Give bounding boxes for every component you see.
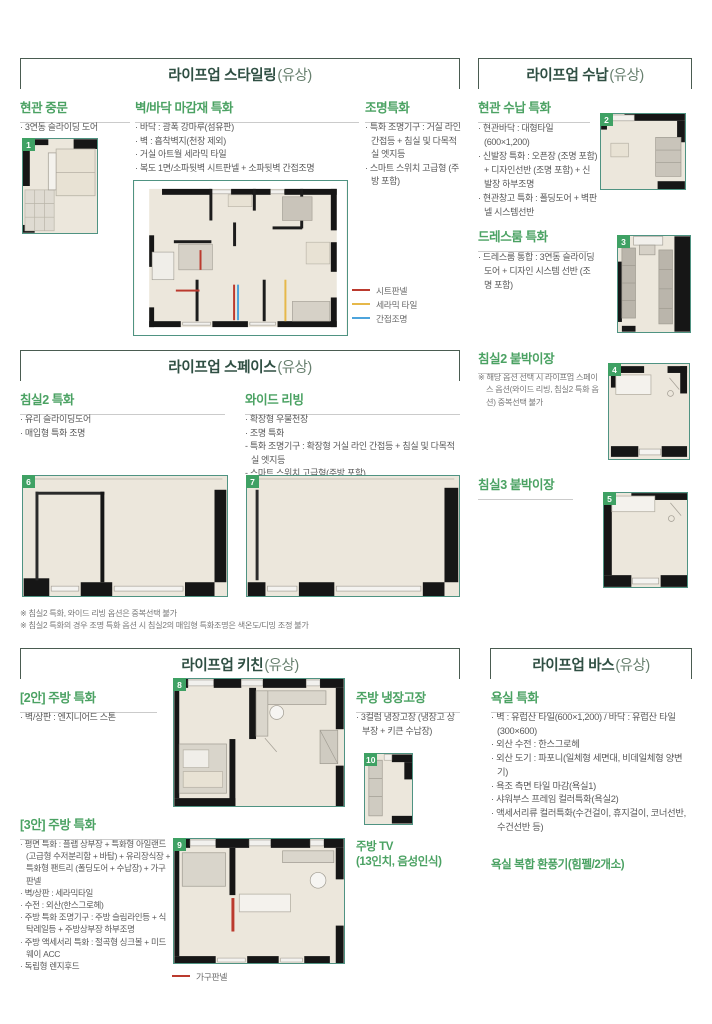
list-item: · 바닥 : 광폭 강마루(섬유판) bbox=[135, 121, 363, 135]
entrance-storage-heading: 현관 수납 특화 bbox=[478, 97, 590, 123]
floorplan-7-svg bbox=[247, 476, 459, 596]
note-item: ※ 해당 옵션 선택 시 라이프업 스페이스 옵션(와이드 리빙, 침실2 특화… bbox=[478, 372, 602, 409]
list-item: · 신발장 특화 : 오픈장 (조명 포함) + 디자인선반 (조명 포함) +… bbox=[478, 149, 598, 191]
section-title-space: 라이프업 스페이스(유상) bbox=[20, 350, 460, 381]
list-item: · 샤워부스 프레임 컬러특화(욕실2) bbox=[491, 793, 687, 807]
section-title-text: 라이프업 바스 bbox=[532, 654, 614, 675]
floorplan-5-svg bbox=[604, 493, 687, 587]
bathroom-items: · 벽 : 유럽산 타일(600×1,200) / 바닥 : 유럽산 타일(30… bbox=[491, 711, 687, 834]
space-bedroom2-items: · 유리 슬라이딩도어 · 매입형 특화 조명 bbox=[20, 413, 225, 440]
section-title-suffix: (유상) bbox=[264, 654, 298, 675]
styling-legend: 시트판넬 세라믹 타일 간접조명 bbox=[352, 283, 417, 325]
floorplan-number-badge: 6 bbox=[22, 475, 35, 488]
floorplan-number-badge: 8 bbox=[173, 678, 186, 691]
floorplan-number-badge: 2 bbox=[600, 113, 613, 126]
section-title-suffix: (유상) bbox=[277, 64, 311, 85]
legend-line-ceramic bbox=[352, 303, 370, 306]
entry-door-heading: 현관 중문 bbox=[20, 97, 130, 123]
floorplan-6: 6 bbox=[22, 475, 228, 597]
kitchen-plan2-heading: [2안] 주방 특화 bbox=[20, 687, 157, 713]
legend-label: 가구판넬 bbox=[196, 970, 227, 983]
list-item: - 특화 조명기구 : 확장형 거실 라인 간접등 + 침실 및 다목적실 엣지… bbox=[245, 440, 461, 467]
list-item: · 벽/상판 : 엔지니어드 스톤 bbox=[20, 711, 160, 725]
floorplan-8-svg bbox=[174, 679, 344, 806]
floorplan-number-badge: 9 bbox=[173, 838, 186, 851]
bath-fan-heading: 욕실 복합 환풍기(힘펠/2개소) bbox=[491, 858, 691, 873]
floorplan-main-svg bbox=[134, 181, 347, 335]
list-item: · 3컬럼 냉장고장 (냉장고 상부장 + 키큰 수납장) bbox=[356, 711, 462, 738]
list-item: · 현관창고 특화 : 폴딩도어 + 벽판넬 시스템선반 bbox=[478, 191, 598, 219]
legend-label: 시트판넬 bbox=[376, 284, 407, 297]
list-item: · 유리 슬라이딩도어 bbox=[20, 413, 225, 427]
list-item: · 욕조 측면 타일 마감(욕실1) bbox=[491, 780, 687, 794]
list-item: · 복도 1면/소파뒷벽 시트판넬 + 소파뒷벽 간접조명 bbox=[135, 162, 363, 176]
legend-label: 세라믹 타일 bbox=[376, 298, 417, 311]
section-title-bath: 라이프업 바스(유상) bbox=[490, 648, 692, 679]
bathroom-heading: 욕실 특화 bbox=[491, 687, 654, 713]
list-item: · 특화 조명기구 : 거실 라인 간접등 + 침실 및 다목적실 엣지등 bbox=[365, 121, 462, 162]
section-title-text: 라이프업 수납 bbox=[526, 64, 608, 85]
floorplan-9-svg bbox=[174, 839, 344, 963]
floorplan-4: 4 bbox=[608, 363, 690, 460]
legend-line-furniture bbox=[172, 975, 190, 978]
list-item: · 벽/상판 : 세라믹타일 bbox=[20, 887, 172, 899]
fridge-heading: 주방 냉장고장 bbox=[356, 687, 460, 713]
list-item: · 스마트 스위치 고급형 (주방 포함) bbox=[365, 162, 462, 189]
list-item: · 독립형 렌지후드 bbox=[20, 960, 172, 972]
list-item: · 주방 특화 조명기구 : 주방 슬림라인등 + 식탁레일등 + 주방상부장 … bbox=[20, 911, 172, 935]
section-title-text: 라이프업 키친 bbox=[181, 654, 263, 675]
list-item: · 수전 : 외산(한스그로헤) bbox=[20, 899, 172, 911]
floorplan-5: 5 bbox=[603, 492, 688, 588]
bedroom2-closet-note: ※ 해당 옵션 선택 시 라이프업 스페이스 옵션(와이드 리빙, 침실2 특화… bbox=[478, 372, 602, 409]
floorplan-main bbox=[133, 180, 348, 336]
list-item: · 액세서리류 컬러특화(수건걸이, 휴지걸이, 코너선반, 수건선반 등) bbox=[491, 807, 687, 834]
section-title-text: 라이프업 스페이스 bbox=[168, 356, 276, 377]
floorplan-7: 7 bbox=[246, 475, 460, 597]
note-item: ※ 침실2 특화, 와이드 리빙 옵션은 중복선택 불가 bbox=[20, 608, 460, 620]
space-bedroom2-heading: 침실2 특화 bbox=[20, 389, 225, 415]
legend-row: 시트판넬 bbox=[352, 283, 417, 297]
kitchen-legend: 가구판넬 bbox=[172, 969, 227, 983]
dressroom-heading: 드레스룸 특화 bbox=[478, 226, 588, 252]
list-item: · 조명 특화 bbox=[245, 427, 461, 441]
space-notes: ※ 침실2 특화, 와이드 리빙 옵션은 중복선택 불가 ※ 침실2 특화의 경… bbox=[20, 608, 460, 633]
section-title-storage: 라이프업 수납(유상) bbox=[478, 58, 692, 89]
legend-row: 간접조명 bbox=[352, 311, 417, 325]
list-item: · 주방 액세서리 특화 : 절곡형 싱크볼 + 미드웨이 ACC bbox=[20, 936, 172, 960]
list-item: · 외산 수전 : 한스그로헤 bbox=[491, 738, 687, 752]
list-item: · 외산 도기 : 파포니(일체형 세면대, 비데일체형 양변기) bbox=[491, 752, 687, 779]
list-item: · 벽 : 흡착벽지(천장 제외) bbox=[135, 135, 363, 149]
list-item: · 평면 특화 : 플랩 상부장 + 특화형 아일랜드(고급형 수저분리함 + … bbox=[20, 838, 172, 887]
legend-row: 가구판넬 bbox=[172, 969, 227, 983]
floorplan-6-svg bbox=[23, 476, 227, 596]
floorplan-10: 10 bbox=[364, 753, 413, 825]
note-item: ※ 침실2 특화의 경우 조명 특화 옵션 시 침실2의 매입형 특화조명은 색… bbox=[20, 620, 460, 632]
floorplan-number-badge: 10 bbox=[364, 753, 377, 766]
kitchen-tv-sub: (13인치, 음성인식) bbox=[356, 855, 466, 870]
section-title-suffix: (유상) bbox=[277, 356, 311, 377]
floorplan-number-badge: 3 bbox=[617, 235, 630, 248]
floorplan-1: 1 bbox=[22, 138, 98, 234]
brochure-page: 라이프업 스타일링(유상) 현관 중문 · 3연동 슬라이딩 도어 1 벽/바닥… bbox=[0, 0, 712, 1024]
entrance-storage-items: · 현관바닥 : 대형타일 (600×1,200) · 신발장 특화 : 오픈장… bbox=[478, 121, 598, 219]
section-title-styling: 라이프업 스타일링(유상) bbox=[20, 58, 460, 89]
section-title-kitchen: 라이프업 키친(유상) bbox=[20, 648, 460, 679]
bedroom2-closet-heading: 침실2 붙박이장 bbox=[478, 348, 573, 374]
legend-line-sheet bbox=[352, 289, 370, 292]
wide-living-heading: 와이드 리빙 bbox=[245, 389, 460, 415]
list-item: · 3연동 슬라이딩 도어 bbox=[20, 121, 134, 135]
floorplan-1-svg bbox=[23, 139, 97, 233]
section-title-suffix: (유상) bbox=[609, 64, 643, 85]
kitchen-tv-title: 주방 TV bbox=[356, 840, 466, 855]
list-item: · 매입형 특화 조명 bbox=[20, 427, 225, 441]
kitchen-plan3-heading: [3안] 주방 특화 bbox=[20, 814, 165, 840]
floorplan-8: 8 bbox=[173, 678, 345, 807]
legend-row: 세라믹 타일 bbox=[352, 297, 417, 311]
kitchen-plan2-items: · 벽/상판 : 엔지니어드 스톤 bbox=[20, 711, 160, 725]
section-title-text: 라이프업 스타일링 bbox=[168, 64, 276, 85]
fridge-items: · 3컬럼 냉장고장 (냉장고 상부장 + 키큰 수납장) bbox=[356, 711, 462, 738]
floorplan-number-badge: 5 bbox=[603, 492, 616, 505]
legend-label: 간접조명 bbox=[376, 312, 407, 325]
lighting-items: · 특화 조명기구 : 거실 라인 간접등 + 침실 및 다목적실 엣지등 · … bbox=[365, 121, 462, 189]
floorplan-3-svg bbox=[618, 236, 690, 332]
floorplan-number-badge: 1 bbox=[22, 138, 35, 151]
floorplan-2-svg bbox=[601, 114, 685, 189]
finish-items: · 바닥 : 광폭 강마루(섬유판) · 벽 : 흡착벽지(천장 제외) · 거… bbox=[135, 121, 363, 175]
list-item: · 거실 아트월 세라믹 타일 bbox=[135, 148, 363, 162]
dressroom-items: · 드레스룸 통합 : 3연동 슬라이딩도어 + 디자인 시스템 선반 (조명 … bbox=[478, 250, 598, 292]
kitchen-tv-heading: 주방 TV (13인치, 음성인식) bbox=[356, 840, 466, 870]
list-item: · 현관바닥 : 대형타일 (600×1,200) bbox=[478, 121, 598, 149]
floorplan-2: 2 bbox=[600, 113, 686, 190]
bedroom3-closet-heading: 침실3 붙박이장 bbox=[478, 474, 573, 500]
list-item: · 벽 : 유럽산 타일(600×1,200) / 바닥 : 유럽산 타일(30… bbox=[491, 711, 687, 738]
floorplan-4-svg bbox=[609, 364, 689, 459]
lighting-heading: 조명특화 bbox=[365, 97, 460, 123]
section-title-suffix: (유상) bbox=[615, 654, 649, 675]
list-item: · 드레스룸 통합 : 3연동 슬라이딩도어 + 디자인 시스템 선반 (조명 … bbox=[478, 250, 598, 292]
wide-living-items: · 확장형 우물천장 · 조명 특화 - 특화 조명기구 : 확장형 거실 라인… bbox=[245, 413, 461, 481]
list-item: · 확장형 우물천장 bbox=[245, 413, 461, 427]
entry-door-items: · 3연동 슬라이딩 도어 bbox=[20, 121, 134, 135]
finish-heading: 벽/바닥 마감재 특화 bbox=[135, 97, 359, 123]
floorplan-number-badge: 4 bbox=[608, 363, 621, 376]
legend-line-indirect bbox=[352, 317, 370, 320]
floorplan-3: 3 bbox=[617, 235, 691, 333]
floorplan-number-badge: 7 bbox=[246, 475, 259, 488]
kitchen-plan3-items: · 평면 특화 : 플랩 상부장 + 특화형 아일랜드(고급형 수저분리함 + … bbox=[20, 838, 172, 972]
floorplan-9: 9 bbox=[173, 838, 345, 964]
